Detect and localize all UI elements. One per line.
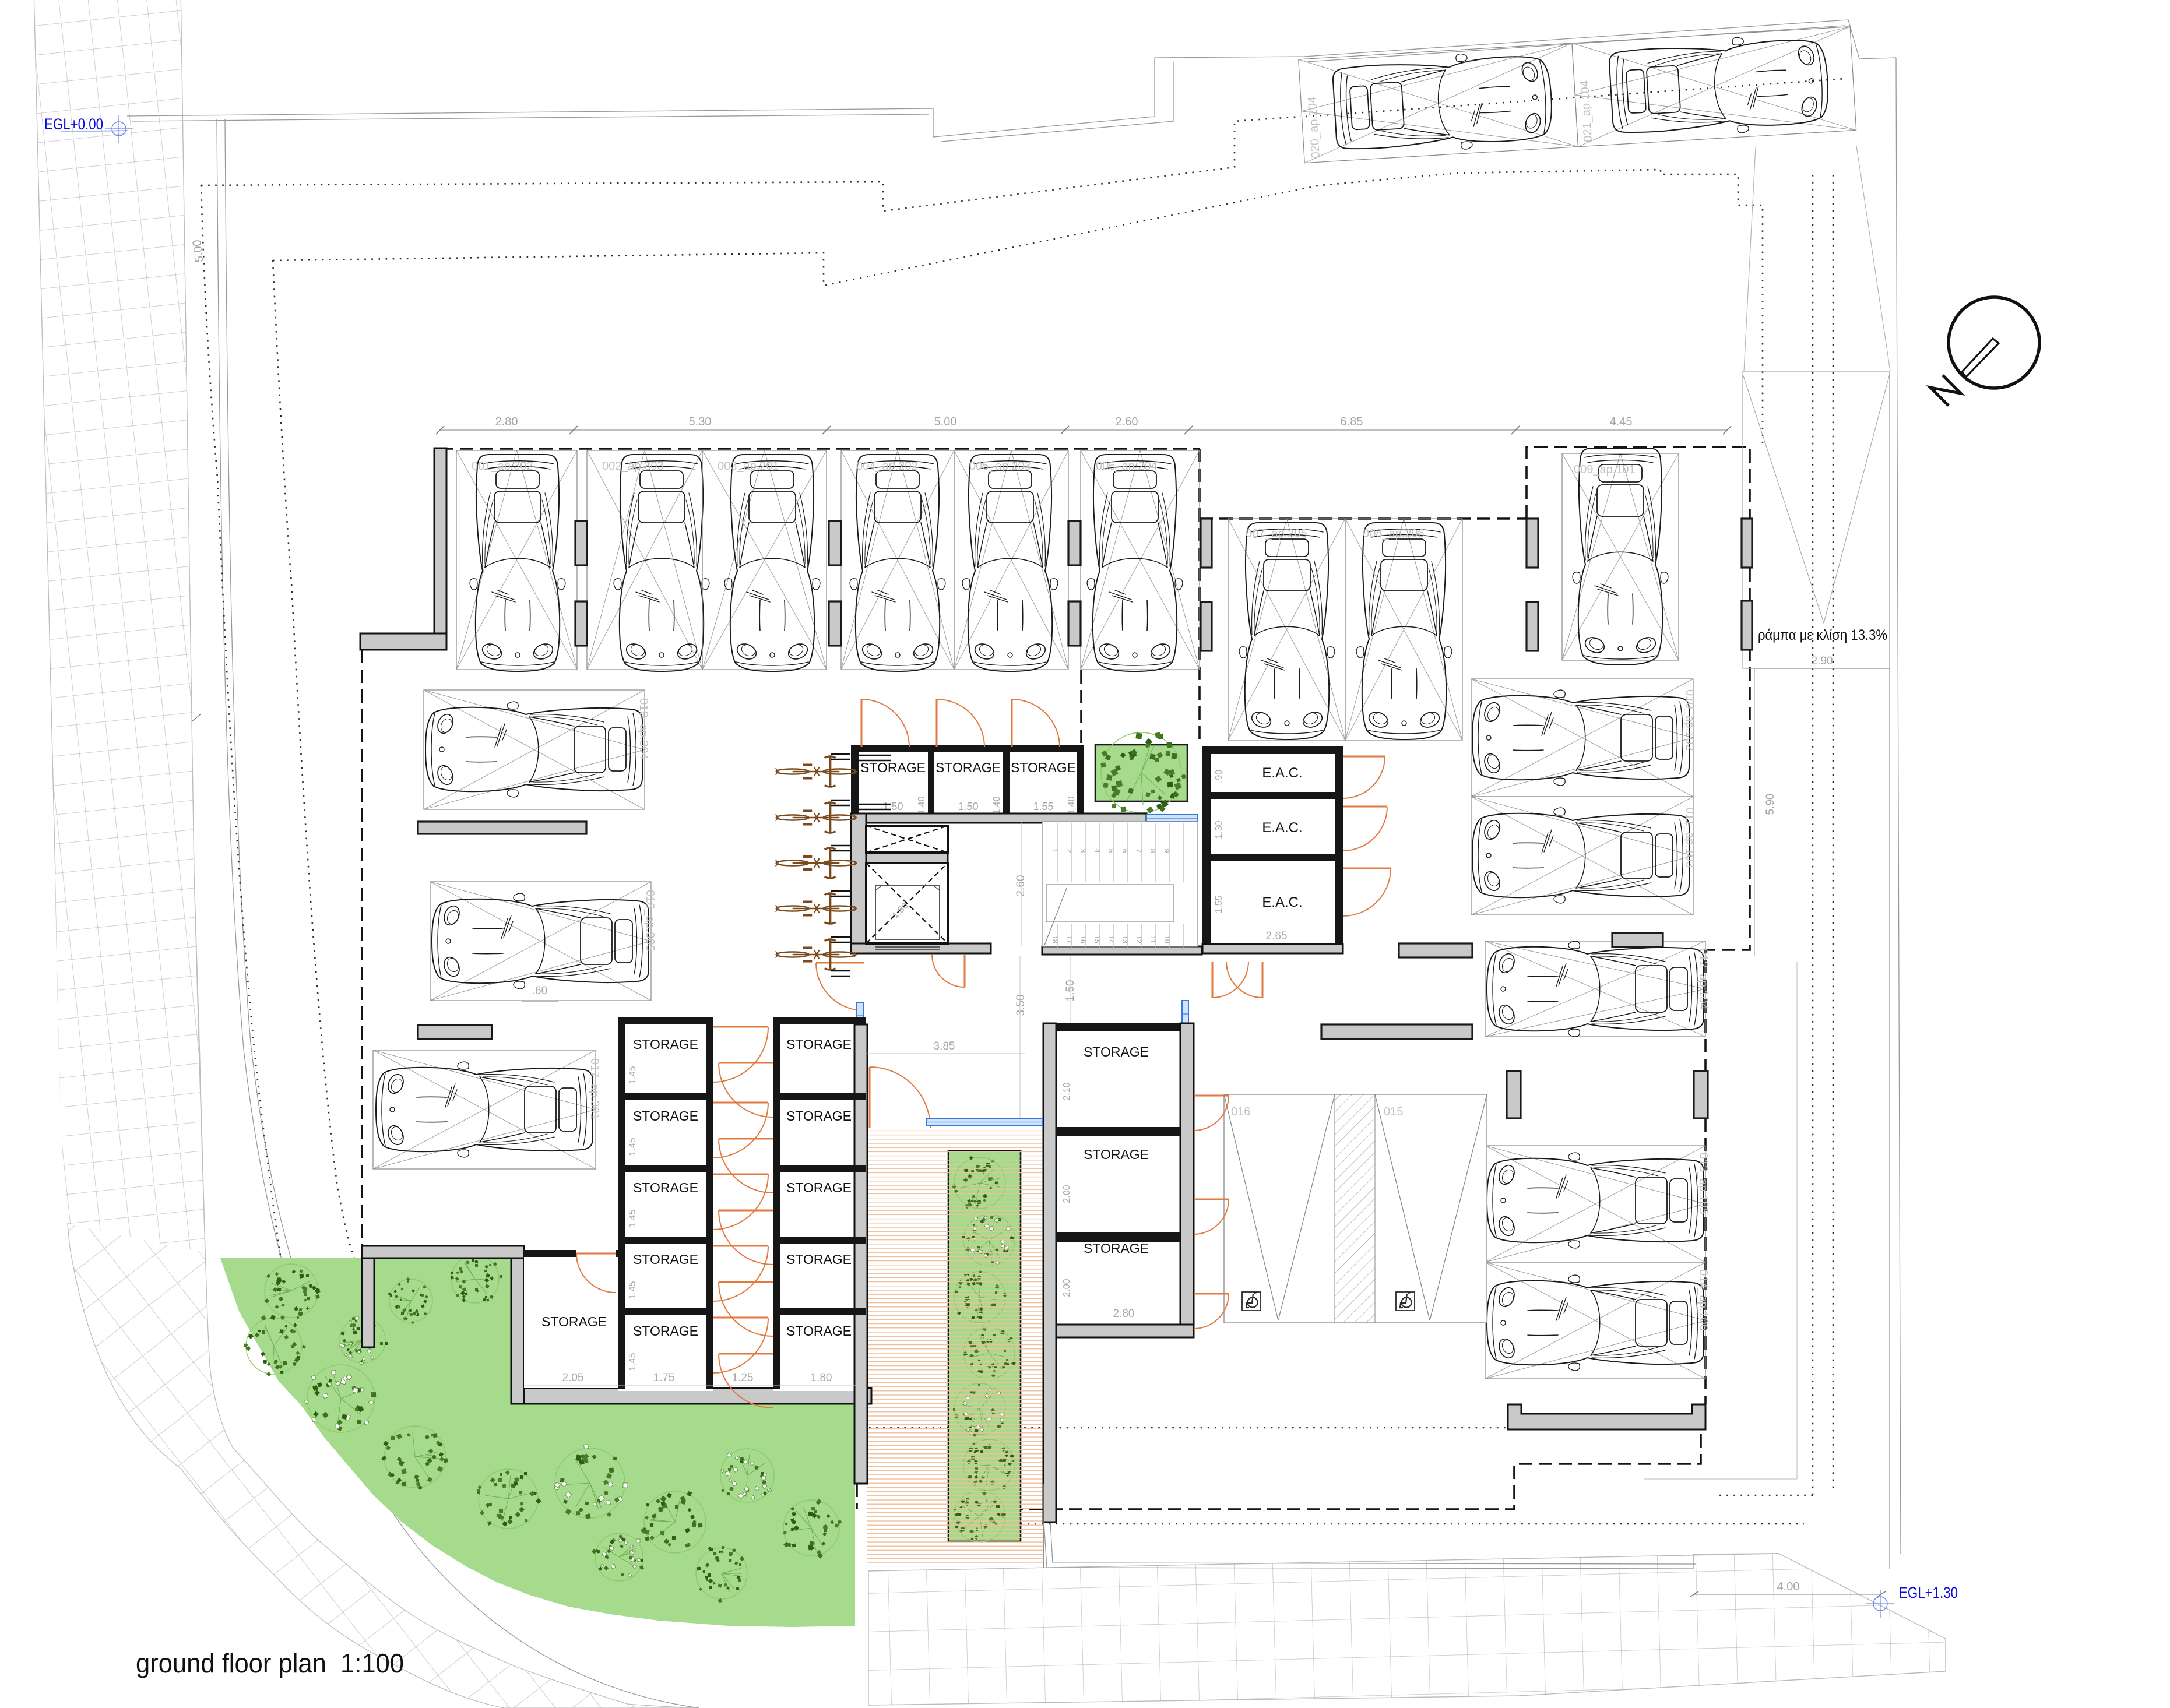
svg-text:9: 9 — [1163, 849, 1171, 853]
svg-text:2.10: 2.10 — [1062, 1082, 1072, 1100]
svg-text:003_ap.201: 003_ap.201 — [718, 460, 779, 473]
svg-text:15: 15 — [1093, 935, 1101, 943]
svg-text:STORAGE: STORAGE — [633, 1108, 698, 1124]
svg-text:017_ap.301: 017_ap.301 — [588, 1058, 601, 1120]
svg-text:1: 1 — [1051, 849, 1059, 853]
svg-text:1.30: 1.30 — [1214, 820, 1224, 839]
svg-text:10: 10 — [1163, 935, 1171, 943]
svg-text:011_ap.103: 011_ap.103 — [1683, 807, 1696, 868]
svg-text:012_ap.104: 012_ap.104 — [1697, 948, 1710, 1010]
svg-text:2.05: 2.05 — [562, 1372, 584, 1384]
svg-text:1.80: 1.80 — [811, 1372, 832, 1384]
svg-text:1.45: 1.45 — [628, 1353, 638, 1371]
svg-text:4: 4 — [1093, 849, 1101, 853]
svg-text:STORAGE: STORAGE — [786, 1323, 852, 1339]
svg-text:002_ap.303: 002_ap.303 — [602, 460, 664, 473]
svg-text:18: 18 — [1051, 935, 1059, 943]
svg-text:STORAGE: STORAGE — [541, 1314, 607, 1329]
svg-text:2.60: 2.60 — [1015, 875, 1027, 897]
svg-text:016: 016 — [1231, 1105, 1250, 1118]
svg-text:2.65: 2.65 — [1266, 930, 1288, 942]
svg-text:STORAGE: STORAGE — [1084, 1044, 1149, 1059]
svg-text:11: 11 — [1149, 936, 1157, 943]
svg-text:6.85: 6.85 — [1341, 415, 1363, 428]
svg-text:5.30: 5.30 — [689, 415, 712, 428]
svg-text:010_ap.102: 010_ap.102 — [1683, 689, 1696, 751]
svg-text:1.55: 1.55 — [1033, 801, 1053, 812]
svg-text:1.55: 1.55 — [1214, 895, 1224, 913]
svg-text:17: 17 — [1065, 935, 1073, 943]
svg-text:STORAGE: STORAGE — [633, 1037, 698, 1052]
svg-text:EGL+0.00: EGL+0.00 — [44, 115, 103, 133]
svg-text:3: 3 — [1079, 849, 1087, 853]
svg-text:.60: .60 — [532, 985, 547, 997]
svg-text:3.50: 3.50 — [1015, 995, 1027, 1016]
svg-text:015: 015 — [1384, 1105, 1403, 1118]
svg-text:STORAGE: STORAGE — [786, 1180, 852, 1195]
svg-text:12: 12 — [1135, 935, 1143, 943]
svg-text:STORAGE: STORAGE — [1011, 760, 1076, 775]
svg-text:5.00: 5.00 — [934, 415, 957, 428]
svg-text:009_ap.101: 009_ap.101 — [1574, 463, 1636, 476]
svg-text:E.A.C.: E.A.C. — [1262, 765, 1302, 781]
svg-text:018_ap.305: 018_ap.305 — [643, 890, 656, 952]
svg-text:STORAGE: STORAGE — [633, 1180, 698, 1195]
svg-text:EGL+1.30: EGL+1.30 — [1899, 1584, 1958, 1601]
svg-text:5.00: 5.00 — [191, 239, 206, 263]
svg-text:3.85: 3.85 — [934, 1040, 955, 1052]
svg-text:.90: .90 — [1214, 770, 1224, 783]
svg-text:STORAGE: STORAGE — [786, 1037, 852, 1052]
svg-text:STORAGE: STORAGE — [860, 760, 926, 775]
svg-text:2.90: 2.90 — [1812, 655, 1833, 667]
svg-text:ράμπα με κλίση 13.3%: ράμπα με κλίση 13.3% — [1758, 627, 1887, 643]
svg-text:1.40: 1.40 — [992, 796, 1002, 814]
svg-text:8: 8 — [1149, 849, 1157, 853]
svg-text:1.45: 1.45 — [628, 1138, 638, 1156]
svg-text:005_ap.203: 005_ap.203 — [969, 460, 1031, 473]
svg-text:001_ap.302: 001_ap.302 — [472, 460, 533, 473]
svg-text:014_ap.106: 014_ap.106 — [1697, 1269, 1710, 1331]
svg-text:2.60: 2.60 — [1116, 415, 1138, 428]
svg-text:004_ap.202: 004_ap.202 — [856, 460, 918, 473]
svg-text:4.45: 4.45 — [1610, 415, 1633, 428]
svg-text:1.45: 1.45 — [628, 1281, 638, 1299]
svg-text:2.80: 2.80 — [495, 415, 518, 428]
svg-text:STORAGE: STORAGE — [786, 1252, 852, 1267]
svg-text:E.A.C.: E.A.C. — [1262, 895, 1302, 910]
svg-text:6: 6 — [1121, 849, 1129, 853]
svg-text:1.40: 1.40 — [917, 796, 927, 814]
svg-text:STORAGE: STORAGE — [633, 1323, 698, 1339]
svg-text:019_ap.304: 019_ap.304 — [637, 698, 650, 760]
svg-text:1.40: 1.40 — [1067, 796, 1077, 814]
svg-text:1.75: 1.75 — [653, 1372, 675, 1384]
svg-text:1.25: 1.25 — [732, 1372, 754, 1384]
svg-text:STORAGE: STORAGE — [1084, 1147, 1149, 1162]
svg-text:STORAGE: STORAGE — [786, 1108, 852, 1124]
svg-text:STORAGE: STORAGE — [633, 1252, 698, 1267]
svg-text:007_ap.205: 007_ap.205 — [1246, 527, 1307, 540]
svg-text:14: 14 — [1107, 935, 1115, 943]
svg-text:2.00: 2.00 — [1062, 1185, 1072, 1203]
svg-text:013_ap.105: 013_ap.105 — [1697, 1153, 1710, 1214]
svg-text:7: 7 — [1135, 849, 1143, 853]
svg-text:2: 2 — [1065, 849, 1073, 853]
svg-text:2.00: 2.00 — [1062, 1279, 1072, 1297]
svg-text:4.00: 4.00 — [1777, 1580, 1800, 1593]
svg-text:16: 16 — [1079, 935, 1087, 943]
svg-text:1.45: 1.45 — [628, 1066, 638, 1084]
svg-text:1.45: 1.45 — [628, 1209, 638, 1227]
svg-text:13: 13 — [1121, 935, 1129, 943]
svg-text:ground floor plan 1:100: ground floor plan 1:100 — [136, 1648, 404, 1678]
svg-text:008_ap.206: 008_ap.206 — [1363, 527, 1425, 540]
svg-text:1.50: 1.50 — [882, 801, 903, 812]
svg-text:2.80: 2.80 — [1113, 1308, 1135, 1320]
svg-text:STORAGE: STORAGE — [935, 760, 1001, 775]
svg-text:1.50: 1.50 — [958, 801, 978, 812]
svg-text:006_ap.204: 006_ap.204 — [1096, 460, 1158, 473]
svg-text:STORAGE: STORAGE — [1084, 1241, 1149, 1256]
svg-text:5.90: 5.90 — [1764, 794, 1777, 815]
svg-text:5: 5 — [1107, 849, 1115, 853]
svg-text:E.A.C.: E.A.C. — [1262, 820, 1302, 836]
